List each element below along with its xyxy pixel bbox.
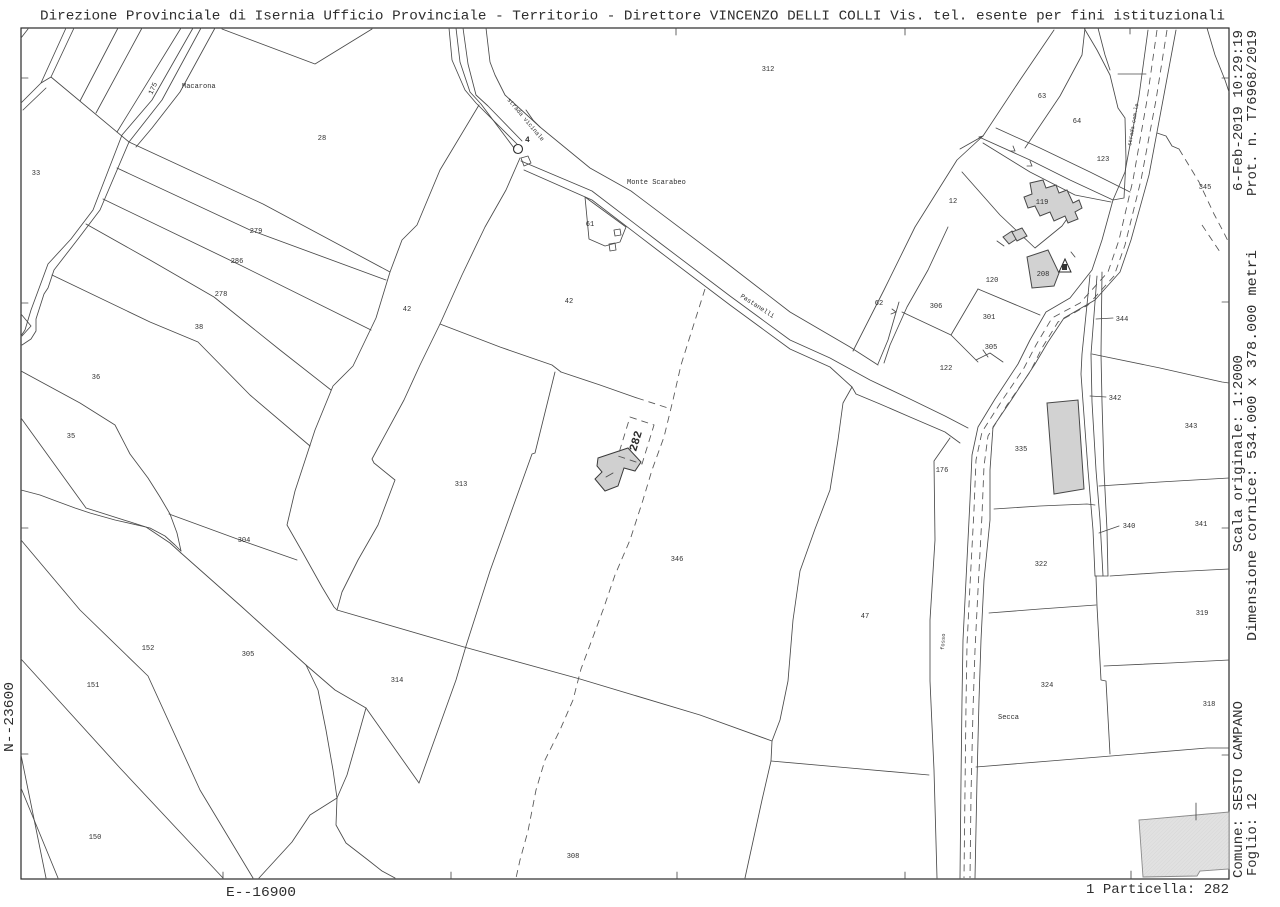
svg-text:Monte Scarabeo: Monte Scarabeo — [627, 179, 686, 187]
svg-text:Direzione Provinciale di Isern: Direzione Provinciale di Isernia Ufficio… — [40, 10, 1225, 25]
svg-text:324: 324 — [1041, 682, 1054, 690]
svg-text:Comune: SESTO CAMPANO: Comune: SESTO CAMPANO — [1232, 701, 1247, 878]
svg-text:176: 176 — [936, 467, 949, 475]
svg-text:150: 150 — [89, 834, 102, 842]
svg-text:151: 151 — [87, 682, 100, 690]
svg-text:62: 62 — [875, 300, 883, 308]
svg-text:35: 35 — [67, 433, 75, 441]
svg-text:208: 208 — [1037, 271, 1050, 279]
svg-text:38: 38 — [195, 324, 203, 332]
svg-text:345: 345 — [1199, 184, 1212, 192]
svg-text:314: 314 — [391, 677, 404, 685]
svg-text:304: 304 — [238, 537, 251, 545]
svg-text:1 Particella: 282: 1 Particella: 282 — [1086, 883, 1229, 898]
svg-text:306: 306 — [930, 303, 943, 311]
svg-text:61: 61 — [586, 221, 594, 229]
svg-text:36: 36 — [92, 374, 100, 382]
svg-text:308: 308 — [567, 853, 580, 861]
svg-text:335: 335 — [1015, 446, 1028, 454]
svg-text:33: 33 — [32, 170, 40, 178]
svg-text:Secca: Secca — [998, 714, 1019, 722]
svg-text:301: 301 — [983, 314, 996, 322]
svg-text:Macarona: Macarona — [182, 83, 216, 91]
svg-text:286: 286 — [231, 258, 244, 266]
svg-text:123: 123 — [1097, 156, 1110, 164]
svg-text:12: 12 — [949, 198, 957, 206]
svg-text:fosso: fosso — [939, 633, 947, 650]
svg-text:342: 342 — [1109, 395, 1122, 403]
svg-text:343: 343 — [1185, 423, 1198, 431]
svg-text:E--16900: E--16900 — [226, 886, 296, 901]
svg-text:Dimensione cornice: 534.000 x: Dimensione cornice: 534.000 x 378.000 me… — [1246, 250, 1261, 641]
svg-text:6-Feb-2019 10:29:19: 6-Feb-2019 10:29:19 — [1232, 30, 1247, 191]
svg-text:278: 278 — [215, 291, 228, 299]
svg-text:Scala originale: 1:2000: Scala originale: 1:2000 — [1232, 355, 1247, 552]
svg-text:28: 28 — [318, 135, 326, 143]
svg-text:Foglio: 12: Foglio: 12 — [1246, 793, 1261, 876]
svg-text:47: 47 — [861, 613, 869, 621]
svg-text:42: 42 — [565, 298, 573, 306]
svg-text:313: 313 — [455, 481, 468, 489]
svg-text:119: 119 — [1036, 199, 1049, 207]
svg-text:305: 305 — [985, 344, 998, 352]
svg-text:122: 122 — [940, 365, 953, 373]
svg-text:346: 346 — [671, 556, 684, 564]
svg-text:340: 340 — [1123, 523, 1136, 531]
svg-text:305: 305 — [242, 651, 255, 659]
svg-text:42: 42 — [403, 306, 411, 314]
svg-text:341: 341 — [1195, 521, 1208, 529]
svg-text:120: 120 — [986, 277, 999, 285]
svg-text:N--23600: N--23600 — [3, 682, 18, 752]
svg-text:64: 64 — [1073, 118, 1081, 126]
svg-text:318: 318 — [1203, 701, 1216, 709]
svg-text:344: 344 — [1116, 316, 1129, 324]
svg-text:152: 152 — [142, 645, 155, 653]
svg-text:Prot. n. T76968/2019: Prot. n. T76968/2019 — [1246, 30, 1261, 196]
svg-text:319: 319 — [1196, 610, 1209, 618]
svg-text:322: 322 — [1035, 561, 1048, 569]
svg-text:63: 63 — [1038, 93, 1046, 101]
svg-text:312: 312 — [762, 66, 775, 74]
svg-text:279: 279 — [250, 228, 263, 236]
svg-text:4: 4 — [525, 136, 530, 145]
